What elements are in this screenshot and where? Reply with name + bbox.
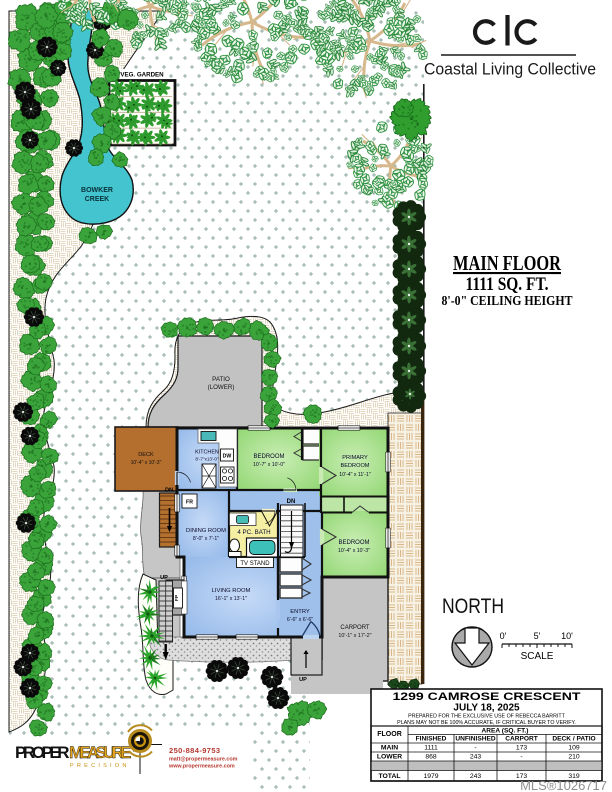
svg-text:PLANS MAY NOT BE 100% ACCURATE: PLANS MAY NOT BE 100% ACCURATE, IF CRITI…	[397, 720, 576, 726]
svg-text:KITCHEN: KITCHEN	[195, 450, 219, 456]
svg-text:8'-0" x 7'-1": 8'-0" x 7'-1"	[193, 536, 219, 542]
svg-text:DN: DN	[165, 488, 173, 494]
svg-text:10': 10'	[561, 631, 573, 641]
svg-text:FR: FR	[186, 500, 193, 506]
svg-text:PATIO: PATIO	[212, 376, 230, 383]
svg-text:DECK: DECK	[138, 452, 154, 458]
svg-text:BEDROOM: BEDROOM	[338, 540, 369, 546]
svg-text:CARPORT: CARPORT	[505, 736, 538, 743]
svg-text:10'-7" x 10'-0": 10'-7" x 10'-0"	[253, 462, 285, 468]
svg-text:6'-6" x 6'-6": 6'-6" x 6'-6"	[287, 617, 313, 623]
svg-text:PREPARED FOR THE EXCLUSIVE USE: PREPARED FOR THE EXCLUSIVE USE OF REBECC…	[408, 714, 565, 720]
svg-text:AREA (SQ. FT.): AREA (SQ. FT.)	[481, 728, 528, 735]
svg-text:4 PC. BATH: 4 PC. BATH	[237, 529, 270, 536]
svg-text:10'-4" x 11'-1": 10'-4" x 11'-1"	[339, 472, 371, 478]
svg-text:CARPORT: CARPORT	[340, 625, 370, 631]
svg-text:UP: UP	[299, 677, 307, 683]
svg-text:matt@propermeasure.com: matt@propermeasure.com	[169, 757, 238, 763]
svg-text:PROPER: PROPER	[15, 743, 69, 762]
svg-text:JULY 18, 2025: JULY 18, 2025	[453, 703, 520, 714]
svg-text:BEDROOM: BEDROOM	[341, 463, 370, 469]
svg-text:173: 173	[516, 745, 528, 752]
svg-text:TV STAND: TV STAND	[240, 561, 270, 567]
svg-text:1979: 1979	[423, 773, 438, 780]
svg-text:PRIMARY: PRIMARY	[342, 455, 368, 461]
svg-text:868: 868	[425, 754, 437, 761]
svg-text:10'-1" x 17'-2": 10'-1" x 17'-2"	[338, 633, 371, 639]
svg-text:10'-4" x 10'-3": 10'-4" x 10'-3"	[338, 548, 370, 554]
svg-text:FP: FP	[174, 594, 180, 601]
svg-text:TOTAL: TOTAL	[378, 773, 400, 780]
svg-text:NORTH: NORTH	[442, 595, 504, 618]
svg-text:MAIN FLOOR: MAIN FLOOR	[453, 251, 562, 275]
svg-text:5': 5'	[534, 631, 541, 641]
svg-text:BOWKER: BOWKER	[81, 187, 113, 194]
svg-text:CREEK: CREEK	[85, 196, 110, 203]
svg-text:1111 SQ. FT.: 1111 SQ. FT.	[466, 274, 549, 295]
svg-text:MLS®1026717: MLS®1026717	[520, 778, 607, 792]
svg-text:250-884-9753: 250-884-9753	[169, 746, 221, 755]
svg-text:VEG. GARDEN: VEG. GARDEN	[120, 72, 164, 79]
svg-text:Coastal Living Collective: Coastal Living Collective	[424, 60, 596, 79]
svg-text:UNFINISHED: UNFINISHED	[455, 736, 496, 743]
svg-text:243: 243	[470, 773, 482, 780]
svg-text:10'-4" x 10'-3": 10'-4" x 10'-3"	[131, 460, 162, 466]
svg-text:DN: DN	[287, 499, 296, 505]
svg-text:BEDROOM: BEDROOM	[253, 454, 284, 460]
svg-text:SCALE: SCALE	[521, 651, 554, 662]
svg-text:-: -	[520, 754, 522, 761]
svg-text:ENTRY: ENTRY	[290, 609, 310, 615]
svg-text:-: -	[474, 745, 476, 752]
svg-text:DINING ROOM: DINING ROOM	[186, 528, 226, 534]
svg-text:243: 243	[470, 754, 482, 761]
svg-text:LIVING ROOM: LIVING ROOM	[212, 588, 251, 594]
svg-text:FINISHED: FINISHED	[416, 736, 447, 743]
svg-text:FLOOR: FLOOR	[377, 731, 402, 738]
svg-text:16'-1" x 13'-1": 16'-1" x 13'-1"	[215, 596, 247, 602]
svg-text:1299 CAMROSE CRESCENT: 1299 CAMROSE CRESCENT	[393, 691, 581, 703]
svg-text:PRECISION: PRECISION	[70, 763, 130, 769]
svg-text:1111: 1111	[424, 745, 438, 752]
svg-text:DW: DW	[223, 454, 232, 460]
svg-text:DECK / PATIO: DECK / PATIO	[552, 736, 595, 743]
svg-text:109: 109	[568, 745, 580, 752]
svg-text:www.propermeasure.com: www.propermeasure.com	[168, 764, 235, 770]
svg-text:210: 210	[568, 754, 580, 761]
svg-text:LOWER: LOWER	[377, 754, 402, 761]
svg-text:0': 0'	[500, 631, 507, 641]
svg-text:(LOWER): (LOWER)	[208, 384, 235, 391]
svg-text:MAIN: MAIN	[381, 745, 398, 752]
svg-text:8'-0" CEILING HEIGHT: 8'-0" CEILING HEIGHT	[442, 293, 573, 308]
svg-text:8'-7"x13'-0": 8'-7"x13'-0"	[195, 457, 219, 462]
svg-text:UP: UP	[160, 575, 168, 581]
svg-text:MEASURE: MEASURE	[69, 743, 131, 762]
